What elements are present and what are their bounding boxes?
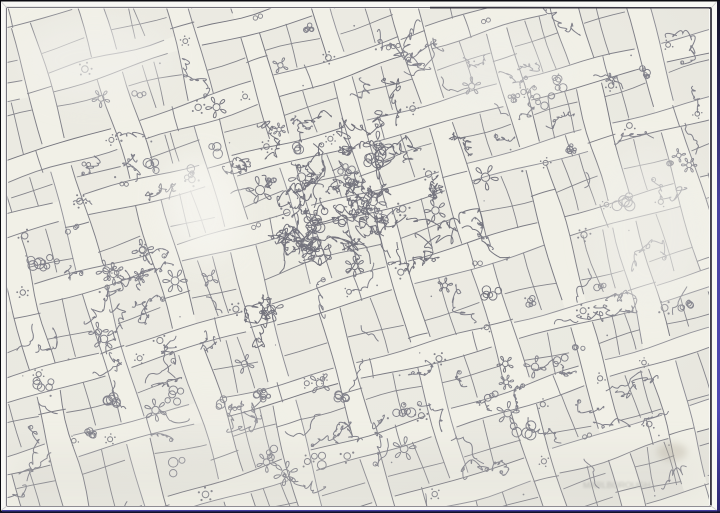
svg-text:MARLBOROUGH: MARLBOROUGH bbox=[583, 480, 651, 490]
